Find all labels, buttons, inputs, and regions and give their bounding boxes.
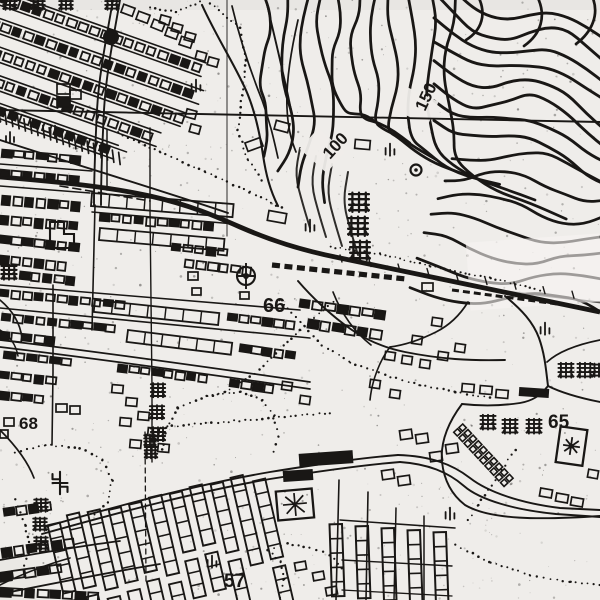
svg-text:66: 66 [263, 295, 285, 317]
svg-text:68: 68 [19, 414, 38, 433]
svg-text:65: 65 [548, 412, 570, 433]
svg-text:57: 57 [224, 571, 245, 592]
